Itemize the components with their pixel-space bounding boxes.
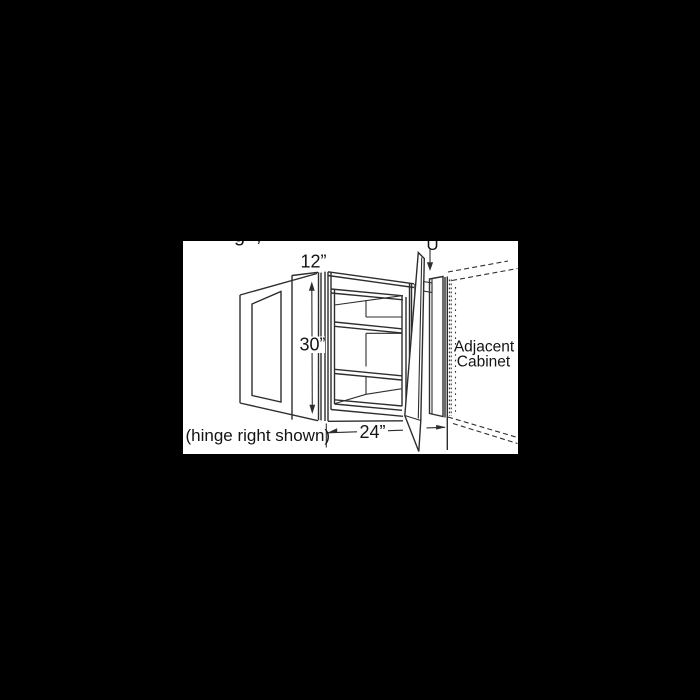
cabinet-bottom xyxy=(328,400,403,422)
label-depth-12: 12” xyxy=(300,252,326,272)
dimension-width-24 xyxy=(326,424,446,448)
label-adjacent-line2: Cabinet xyxy=(457,354,511,371)
interior-blind-corner-lines xyxy=(335,296,402,404)
title-fragment-u: U xyxy=(426,241,438,254)
screenshot-canvas: 12” 30” 24” (hinge right shown) Adjacent… xyxy=(0,0,700,700)
title-fragment-g: g xyxy=(234,241,245,247)
title-fragment-comma: , xyxy=(256,241,262,247)
diagram-panel: 12” 30” 24” (hinge right shown) Adjacent… xyxy=(183,241,518,454)
label-hinge-note: (hinge right shown) xyxy=(186,426,331,445)
hinge-bracket xyxy=(424,282,433,293)
cabinet-top xyxy=(328,272,414,300)
label-height-30: 30” xyxy=(299,335,325,355)
filler-strip xyxy=(430,277,452,451)
shelves xyxy=(335,322,402,380)
truncated-title-fragments: g , U xyxy=(234,241,439,254)
label-width-24: 24” xyxy=(359,422,385,442)
cabinet-line-drawing: 12” 30” 24” (hinge right shown) Adjacent… xyxy=(183,241,518,454)
